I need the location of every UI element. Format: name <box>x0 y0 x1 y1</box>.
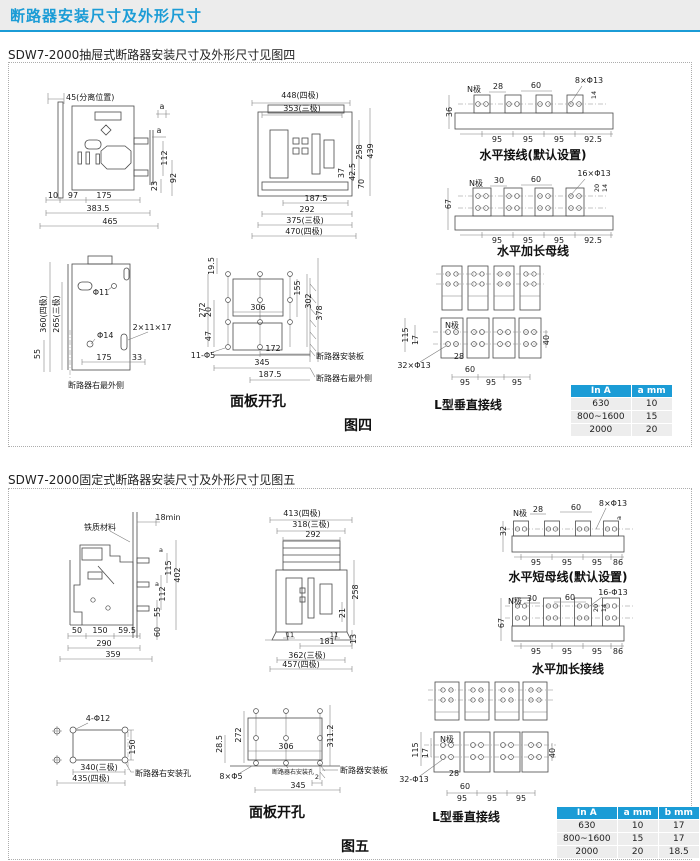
dim-label: 292 <box>305 530 320 539</box>
table-cell: 17 <box>658 820 699 833</box>
dim-label: 258 <box>351 584 360 599</box>
drawing-caption: 面板开孔 <box>249 804 305 821</box>
dim-label: Φ14 <box>97 331 113 340</box>
dim-label: 345 <box>254 358 269 367</box>
dim-label: 8×Φ5 <box>219 772 242 781</box>
dim-label: 112 <box>158 586 167 601</box>
dim-label: 8×Φ13 <box>599 499 627 508</box>
dim-label: 60 <box>571 503 581 512</box>
dim-label: 60 <box>465 365 475 374</box>
part-label: 断路器右安装孔 <box>272 768 314 776</box>
drawing-caption: 水平加长母线 <box>497 243 569 258</box>
part-label: 断路器右最外侧 <box>68 380 124 390</box>
fig5-horizontal-extended-wiring-drawing: N极 30 60 16-Φ13 20 14 67 95 95 95 86 水平加… <box>497 588 634 676</box>
dim-label: N极 <box>467 84 481 94</box>
dim-label: 28 <box>493 82 503 91</box>
dim-label: 465 <box>102 217 117 226</box>
dim-label: 28.5 <box>215 735 224 753</box>
fig5-l-vertical-wiring-drawing: N极 115 17 32-Φ13 28 60 95 95 95 40 L型垂直接… <box>399 682 557 824</box>
drawing-caption: 水平加长接线 <box>532 661 604 676</box>
dim-label: 290 <box>96 639 111 648</box>
drawing-caption: 面板开孔 <box>230 393 286 410</box>
dim-label: 17 <box>411 335 420 345</box>
dim-label: 59.5 <box>118 626 136 635</box>
table-header-cell: a mm <box>631 385 672 398</box>
table-cell: 630 <box>557 820 618 833</box>
table-cell: 10 <box>631 398 672 411</box>
dim-label: 42.5 <box>348 163 357 181</box>
dim-label: 150 <box>92 626 107 635</box>
dim-label: 67 <box>497 618 506 628</box>
dim-label: 60 <box>153 627 162 637</box>
fig5-side-view-drawing: 铁质材料 18min a 115 402 112 a 55 60 50 150 … <box>60 512 182 662</box>
dim-label: 97 <box>68 191 78 200</box>
table-row: 630 10 <box>571 398 673 411</box>
dim-label: 2 <box>315 773 319 781</box>
dim-label: N极 <box>513 508 527 518</box>
dim-label: 30 <box>527 594 537 603</box>
dim-label: 33 <box>132 353 142 362</box>
dim-label: 175 <box>96 191 111 200</box>
dim-label: 95 <box>592 558 602 567</box>
table-header-row: In A a mm <box>571 385 673 398</box>
dim-label: 115 <box>411 742 420 757</box>
dim-label: 95 <box>523 135 533 144</box>
dim-label: 50 <box>72 626 82 635</box>
fig4-horizontal-wiring-drawing: N极 28 60 8×Φ13 14 36 95 95 95 92.5 水平接线(… <box>445 76 613 162</box>
dim-label: 28 <box>533 505 543 514</box>
dim-label: 302 <box>304 293 313 308</box>
table-header-cell: In A <box>571 385 632 398</box>
dim-label: 16-Φ13 <box>598 588 628 597</box>
dim-label: 30 <box>494 176 504 185</box>
dim-label: 92.5 <box>584 236 602 245</box>
dim-label: 20 <box>204 307 213 317</box>
part-label: 断路器右最外侧 <box>316 373 372 383</box>
dim-label: 13 <box>349 634 358 644</box>
dim-label: 435(四极) <box>72 773 110 783</box>
dim-label: 265(三极) <box>51 295 61 333</box>
dim-label: 306 <box>250 303 265 312</box>
dim-label: 86 <box>613 558 623 567</box>
dim-label: 448(四极) <box>281 90 319 100</box>
dim-label: 95 <box>531 558 541 567</box>
dim-label: 470(四极) <box>285 226 323 236</box>
table-cell: 800~1600 <box>557 833 618 846</box>
dim-label: 14 <box>601 184 609 192</box>
dim-label: 37 <box>337 168 346 178</box>
dim-label: 4-Φ12 <box>86 714 110 723</box>
dim-label: 18min <box>155 513 180 522</box>
fig4-front-view-drawing: 448(四极) 353(三极) 258 439 37 42.5 70 187.5… <box>252 90 375 239</box>
dim-label: 60 <box>565 593 575 602</box>
drawing-caption: L型垂直接线 <box>434 397 502 412</box>
dim-label: 95 <box>486 378 496 387</box>
dim-label: 292 <box>299 205 314 214</box>
table-header-cell: In A <box>557 807 618 820</box>
fig4-side-view-drawing: 45(分离位置) a a 112 23 92 10 97 175 383.5 4… <box>40 92 178 229</box>
dim-label: 36 <box>445 107 454 117</box>
table-cell: 17 <box>658 833 699 846</box>
dim-label: 32 <box>499 526 508 536</box>
dim-label: 17 <box>421 748 430 758</box>
dim-label: 95 <box>460 378 470 387</box>
drawing-caption: 水平短母线(默认设置) <box>509 569 628 584</box>
table-header-cell: b mm <box>658 807 699 820</box>
dim-label: 95 <box>457 794 467 803</box>
table-cell: 15 <box>631 411 672 424</box>
dim-label: Φ11 <box>93 288 109 297</box>
dim-label: 11 <box>286 631 294 639</box>
table-cell: 2000 <box>557 846 618 859</box>
dim-label: 378 <box>315 305 324 320</box>
dim-label: 95 <box>512 378 522 387</box>
table-row: 630 10 17 <box>557 820 700 833</box>
dim-label: 112 <box>160 150 169 165</box>
dim-label: 115 <box>164 560 173 575</box>
dim-label: 19.5 <box>207 257 216 275</box>
dim-label: 172 <box>265 344 280 353</box>
dim-label: 60 <box>531 81 541 90</box>
dim-label: 67 <box>444 199 453 209</box>
dim-label: 318(三极) <box>292 519 330 529</box>
dim-label: 95 <box>492 135 502 144</box>
fig5-mounting-holes-drawing: 4-Φ12 150 340(三极) 435(四极) 断路器右安装孔 <box>52 714 191 786</box>
table-cell: 800~1600 <box>571 411 632 424</box>
dim-label: a <box>159 546 163 554</box>
dim-label: 362(三极) <box>288 650 326 660</box>
dim-label: 20 <box>593 184 601 192</box>
dim-label: 95 <box>562 647 572 656</box>
dim-label: 70 <box>357 179 366 189</box>
dim-label: 181 <box>319 637 334 646</box>
dim-label: 359 <box>105 650 120 659</box>
dim-label: 40 <box>548 748 557 758</box>
dim-label: 11-Φ5 <box>191 351 215 360</box>
part-label: 断路器安装板 <box>340 765 388 775</box>
dim-label: 55 <box>33 349 42 359</box>
current-dimension-table-fig4: In A a mm 630 10 800~1600 15 2000 20 <box>570 384 673 437</box>
dim-label: 8×Φ13 <box>575 76 603 85</box>
part-label: 断路器右安装孔 <box>135 768 191 778</box>
dim-label: 115 <box>401 327 410 342</box>
dim-label: 258 <box>355 144 364 159</box>
dim-label: 40 <box>542 335 551 345</box>
dim-label: 55 <box>153 607 162 617</box>
dim-label: 92 <box>169 173 178 183</box>
fig5-horizontal-short-busbar-drawing: N极 28 60 8×Φ13 a 32 95 95 95 86 水平短母线(默认… <box>499 499 634 584</box>
drawing-caption: L型垂直接线 <box>432 809 500 824</box>
table-cell: 15 <box>617 833 658 846</box>
table-header-row: In A a mm b mm <box>557 807 700 820</box>
table-cell: 10 <box>617 820 658 833</box>
table-row: 2000 20 <box>571 424 673 437</box>
dim-label: 272 <box>234 727 243 742</box>
fig5-panel-cutout-drawing: 28.5 272 306 311.2 8×Φ5 断路器右安装孔 2 断路器安装板… <box>215 705 388 821</box>
dim-label: 311.2 <box>326 725 335 748</box>
dim-label: 21 <box>338 608 347 618</box>
table-cell: 20 <box>617 846 658 859</box>
dim-label: 14 <box>590 91 598 99</box>
dim-label: 95 <box>554 135 564 144</box>
dim-label: a <box>160 102 165 111</box>
dim-label: 32×Φ13 <box>397 361 430 370</box>
table-cell: 630 <box>571 398 632 411</box>
dim-label: 413(四极) <box>283 508 321 518</box>
table-cell: 18.5 <box>658 846 699 859</box>
dim-label: 150 <box>128 739 137 754</box>
table-cell: 2000 <box>571 424 632 437</box>
dim-label: a <box>155 580 159 588</box>
table-row: 800~1600 15 17 <box>557 833 700 846</box>
dim-label: N极 <box>508 596 522 606</box>
dim-label: 92.5 <box>584 135 602 144</box>
dim-label: 2×11×17 <box>133 323 172 332</box>
part-label: 铁质材料 <box>84 522 116 532</box>
dim-label: 32-Φ13 <box>399 775 429 784</box>
dim-label: 95 <box>592 647 602 656</box>
dim-label: 45(分离位置) <box>66 92 114 102</box>
fig4-panel-cutout-drawing: 19.5 272 20 47 306 155 302 378 11-Φ5 172… <box>191 257 372 410</box>
dim-label: 402 <box>173 567 182 582</box>
dim-label: 353(三极) <box>283 103 321 113</box>
dim-label: 360(四极) <box>38 295 48 333</box>
dim-label: 175 <box>96 353 111 362</box>
dim-label: 86 <box>613 647 623 656</box>
dim-label: 10 <box>48 191 58 200</box>
dim-label: 95 <box>487 794 497 803</box>
dim-label: 340(三极) <box>80 762 118 772</box>
fig5-front-view-drawing: 413(四极) 318(三极) 292 258 21 13 11 11 181 … <box>265 508 360 672</box>
fig4-horizontal-busbar-drawing: N极 30 60 16×Φ13 20 14 67 95 95 95 92.5 水… <box>444 169 613 258</box>
dim-label: 439 <box>366 143 375 158</box>
dim-label: N极 <box>469 178 483 188</box>
dim-label: 47 <box>204 331 213 341</box>
table-header-cell: a mm <box>617 807 658 820</box>
dim-label: 95 <box>562 558 572 567</box>
drawing-caption: 水平接线(默认设置) <box>480 147 587 162</box>
dim-label: 95 <box>531 647 541 656</box>
figure5-caption: 图五 <box>341 839 369 855</box>
dim-label: N极 <box>445 320 459 330</box>
dim-label: 383.5 <box>87 204 110 213</box>
dim-label: 28 <box>454 352 464 361</box>
dim-label: 60 <box>531 175 541 184</box>
current-dimension-table-fig5: In A a mm b mm 630 10 17 800~1600 15 17 … <box>556 806 700 859</box>
dim-label: 187.5 <box>259 370 282 379</box>
table-row: 800~1600 15 <box>571 411 673 424</box>
table-cell: 20 <box>631 424 672 437</box>
dim-label: 14 <box>600 604 608 612</box>
dim-label: a <box>615 516 623 520</box>
dim-label: 20 <box>592 604 600 612</box>
dim-label: 28 <box>449 769 459 778</box>
dim-label: 23 <box>150 181 159 191</box>
dim-label: 345 <box>290 781 305 790</box>
dim-label: 375(三极) <box>286 215 324 225</box>
fig4-l-vertical-wiring-drawing: N极 115 17 32×Φ13 28 60 95 95 95 40 L型垂直接… <box>397 266 551 412</box>
fig4-right-side-drawing: Φ11 Φ14 2×11×17 360(四极) 265(三极) 55 175 3… <box>33 256 171 390</box>
dim-label: 155 <box>293 280 302 295</box>
table-row: 2000 20 18.5 <box>557 846 700 859</box>
dim-label: a <box>157 126 162 135</box>
dim-label: 60 <box>460 782 470 791</box>
figure4-caption: 图四 <box>344 418 372 434</box>
dim-label: 187.5 <box>305 194 328 203</box>
dim-label: 306 <box>278 742 293 751</box>
dim-label: 16×Φ13 <box>577 169 610 178</box>
part-label: 断路器安装板 <box>316 351 364 361</box>
dim-label: 457(四极) <box>282 659 320 669</box>
dim-label: 95 <box>516 794 526 803</box>
dim-label: N极 <box>440 734 454 744</box>
